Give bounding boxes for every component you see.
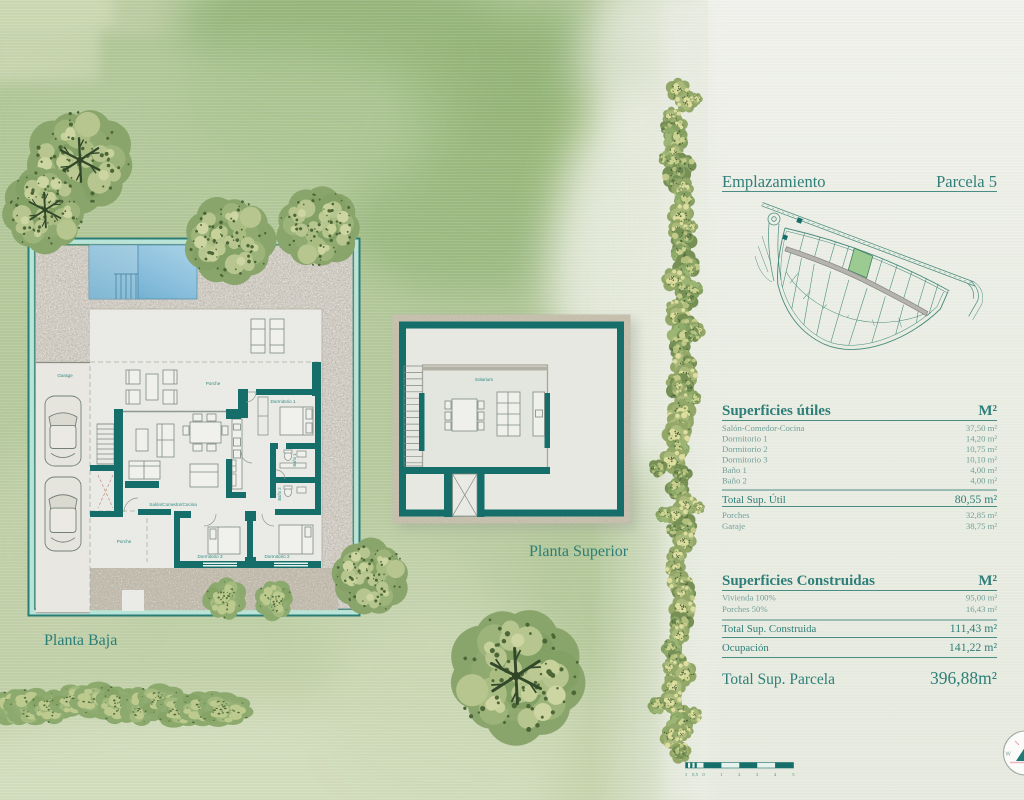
svg-text:Superficies útiles: Superficies útiles xyxy=(722,403,831,419)
svg-text:Dormitorio 2: Dormitorio 2 xyxy=(722,444,768,454)
svg-text:Baño 2: Baño 2 xyxy=(722,476,747,486)
svg-text:16,43 m²: 16,43 m² xyxy=(966,604,997,614)
svg-text:Dormitorio 3: Dormitorio 3 xyxy=(197,554,222,559)
svg-text:M²: M² xyxy=(978,403,997,419)
svg-text:38,75 m²: 38,75 m² xyxy=(966,521,997,531)
svg-text:Salón/Comedor/Cocina: Salón/Comedor/Cocina xyxy=(149,502,197,507)
svg-text:Porche: Porche xyxy=(117,539,132,544)
svg-text:Porches: Porches xyxy=(722,510,750,520)
svg-text:Vivienda 100%: Vivienda 100% xyxy=(722,593,776,603)
svg-text:4,00 m²: 4,00 m² xyxy=(970,476,997,486)
svg-text:Superficies Construidas: Superficies Construidas xyxy=(722,573,875,589)
svg-text:Garage: Garage xyxy=(57,373,73,378)
svg-text:Porches 50%: Porches 50% xyxy=(722,604,768,614)
svg-text:Baño 1: Baño 1 xyxy=(722,465,747,475)
svg-text:Baño 2: Baño 2 xyxy=(277,487,282,501)
svg-text:95,00 m²: 95,00 m² xyxy=(966,593,997,603)
svg-text:Salón-Comedor-Cocina: Salón-Comedor-Cocina xyxy=(722,423,804,433)
svg-text:Parcela 5: Parcela 5 xyxy=(936,172,997,191)
svg-text:37,50 m²: 37,50 m² xyxy=(966,423,997,433)
svg-text:80,55 m²: 80,55 m² xyxy=(955,492,998,506)
svg-text:Total Sup. Construida: Total Sup. Construida xyxy=(722,623,817,635)
svg-text:111,43 m²: 111,43 m² xyxy=(950,621,998,635)
svg-text:14,20 m²: 14,20 m² xyxy=(966,434,997,444)
svg-text:10,10 m²: 10,10 m² xyxy=(966,455,997,465)
svg-text:10,75 m²: 10,75 m² xyxy=(966,444,997,454)
svg-text:Dormitorio 3: Dormitorio 3 xyxy=(722,455,768,465)
svg-text:Dormitorio 1: Dormitorio 1 xyxy=(722,434,768,444)
svg-text:Dormitorio 2: Dormitorio 2 xyxy=(264,554,289,559)
svg-text:Ocupación: Ocupación xyxy=(722,642,769,654)
svg-text:Planta Superior: Planta Superior xyxy=(529,543,629,560)
svg-text:Porche: Porche xyxy=(206,381,221,386)
svg-text:4,00 m²: 4,00 m² xyxy=(970,465,997,475)
svg-text:Baño 1: Baño 1 xyxy=(292,453,297,467)
svg-text:Dormitorio 1: Dormitorio 1 xyxy=(270,399,295,404)
svg-text:396,88m²: 396,88m² xyxy=(930,668,997,688)
svg-text:32,85 m²: 32,85 m² xyxy=(966,510,997,520)
svg-text:Garaje: Garaje xyxy=(722,521,745,531)
svg-text:Total Sup. Parcela: Total Sup. Parcela xyxy=(722,671,835,688)
svg-text:M²: M² xyxy=(978,573,997,589)
svg-text:141,22 m²: 141,22 m² xyxy=(949,640,998,654)
svg-text:W: W xyxy=(1006,752,1012,758)
svg-text:Emplazamiento: Emplazamiento xyxy=(722,172,826,191)
svg-text:Planta Baja: Planta Baja xyxy=(44,632,117,649)
svg-text:Total Sup. Útil: Total Sup. Útil xyxy=(722,494,786,506)
svg-text:Solarium: Solarium xyxy=(475,377,493,382)
